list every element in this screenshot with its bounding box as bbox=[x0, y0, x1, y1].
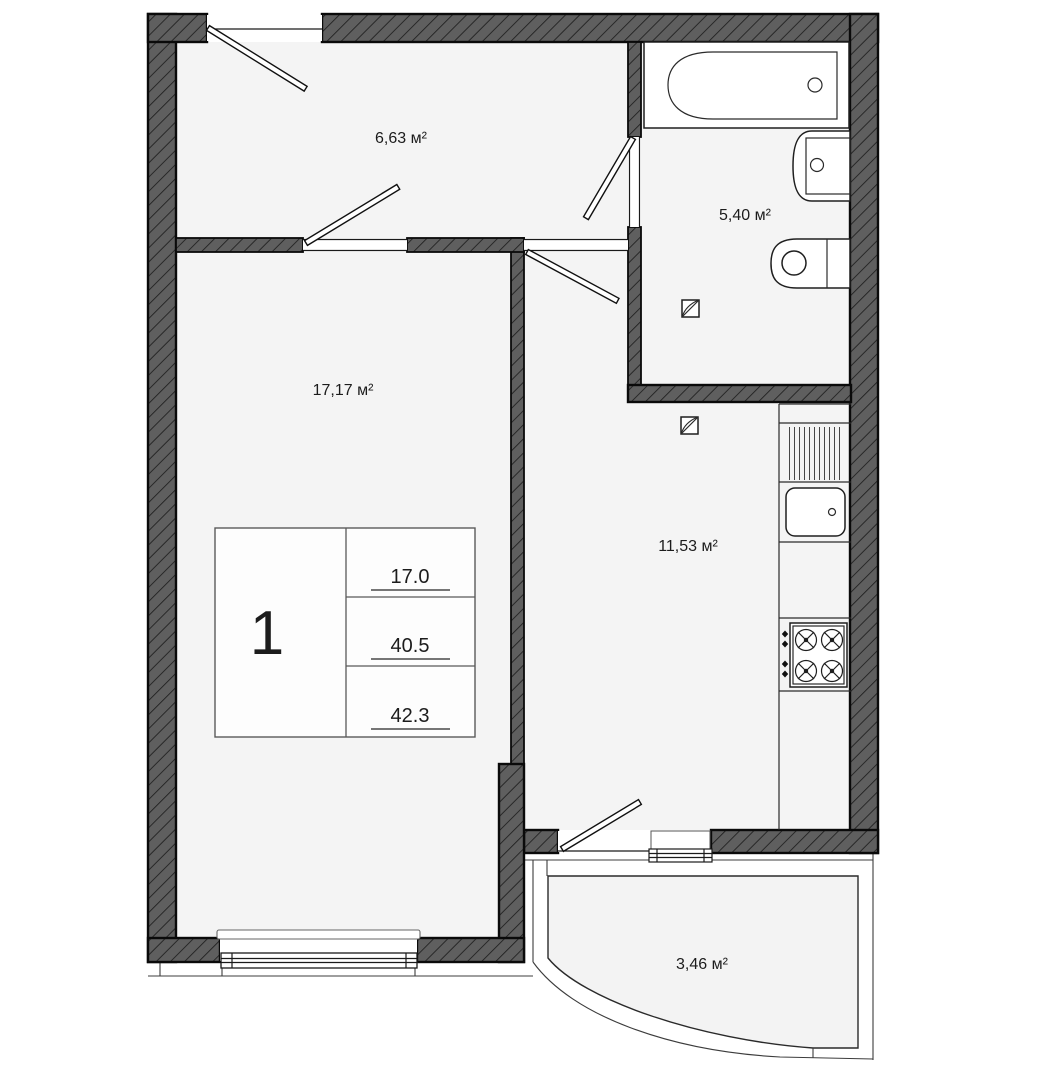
right-outer-wall bbox=[850, 14, 878, 853]
bathroom-vent-icon bbox=[682, 300, 699, 317]
balcony-door-stub-wall bbox=[524, 830, 558, 853]
hallway-living-opening bbox=[303, 239, 407, 251]
living-room-window bbox=[217, 930, 420, 968]
living-bottom-wall-right bbox=[417, 938, 524, 962]
bathroom-area-label: 5,40 м² bbox=[719, 207, 772, 224]
living-kitchen-wall-upper bbox=[511, 238, 524, 764]
balcony-area-label: 3,46 м² bbox=[676, 956, 729, 973]
bathroom-left-wall-lower bbox=[628, 227, 641, 385]
top-wall-left-piece bbox=[148, 14, 207, 42]
stamp-value-apartment-area: 40.5 bbox=[391, 635, 430, 657]
kitchen-area-label: 11,53 м² bbox=[658, 538, 718, 555]
hallway-area-label: 6,63 м² bbox=[375, 130, 428, 147]
bathtub bbox=[644, 42, 849, 128]
washbasin bbox=[793, 131, 850, 201]
bathroom-opening bbox=[629, 137, 640, 227]
top-outer-wall bbox=[322, 14, 878, 42]
balcony-window bbox=[649, 831, 712, 862]
hallway-living-wall-right bbox=[407, 238, 524, 252]
apartment-stamp: 1 17.0 40.5 42.3 bbox=[215, 528, 475, 737]
left-outer-wall bbox=[148, 14, 176, 962]
stamp-value-total-area: 42.3 bbox=[391, 705, 430, 727]
stove bbox=[782, 623, 847, 687]
floor-plan-canvas: 6,63 м² 5,40 м² 17,17 м² 11,53 м² 3,46 м… bbox=[0, 0, 1053, 1080]
living-kitchen-wall-lower bbox=[499, 764, 524, 962]
kitchen-bottom-wall bbox=[711, 830, 878, 853]
living-bottom-wall-left bbox=[148, 938, 220, 962]
kitchen-sink bbox=[786, 488, 845, 536]
hallway-living-wall-left bbox=[176, 238, 303, 252]
living-room-area-label: 17,17 м² bbox=[313, 382, 374, 399]
kitchen-vent-icon bbox=[681, 417, 698, 434]
bathroom-left-wall-upper bbox=[628, 42, 641, 137]
toilet bbox=[771, 239, 850, 288]
apartment-number: 1 bbox=[250, 599, 284, 668]
hallway-kitchen-opening bbox=[524, 239, 628, 251]
stamp-value-living-area: 17.0 bbox=[391, 566, 430, 588]
bathroom-bottom-wall bbox=[628, 385, 851, 402]
